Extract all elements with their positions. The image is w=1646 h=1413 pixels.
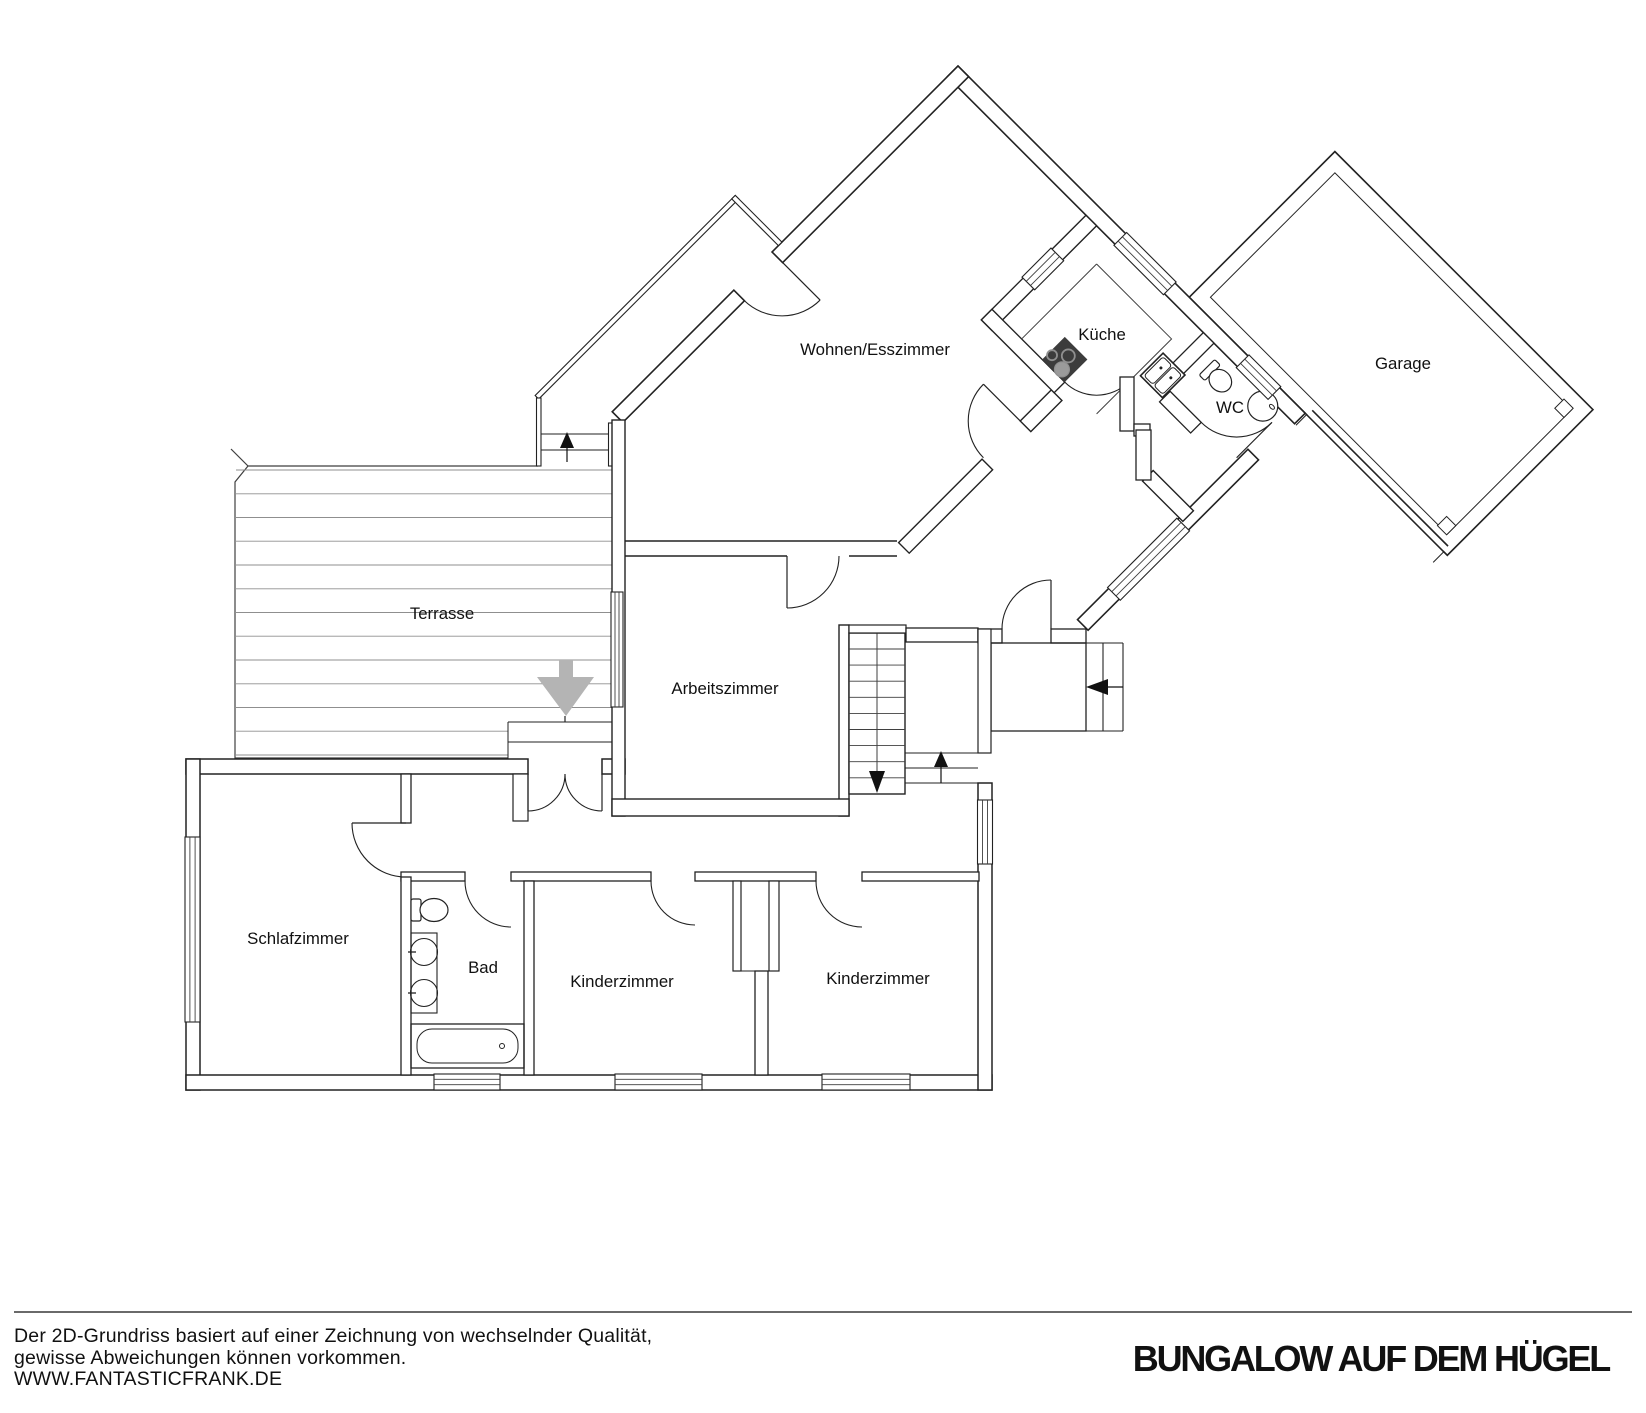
svg-text:Der 2D-Grundriss basiert auf e: Der 2D-Grundriss basiert auf einer Zeich… [14,1325,652,1347]
svg-text:Garage: Garage [1375,354,1431,373]
svg-text:BUNGALOW AUF DEM HÜGEL: BUNGALOW AUF DEM HÜGEL [1133,1338,1610,1379]
svg-text:Kinderzimmer: Kinderzimmer [826,969,930,988]
svg-text:WC: WC [1216,398,1244,417]
svg-text:Kinderzimmer: Kinderzimmer [570,972,674,991]
svg-text:gewisse Abweichungen können vo: gewisse Abweichungen können vorkommen. [14,1347,406,1369]
svg-text:WWW.FANTASTICFRANK.DE: WWW.FANTASTICFRANK.DE [14,1368,282,1390]
svg-text:Küche: Küche [1078,325,1126,344]
svg-text:Arbeitszimmer: Arbeitszimmer [671,679,779,698]
svg-text:Terrasse: Terrasse [410,604,474,623]
svg-text:Bad: Bad [468,958,498,977]
svg-text:Schlafzimmer: Schlafzimmer [247,929,349,948]
svg-text:Wohnen/Esszimmer: Wohnen/Esszimmer [800,340,950,359]
